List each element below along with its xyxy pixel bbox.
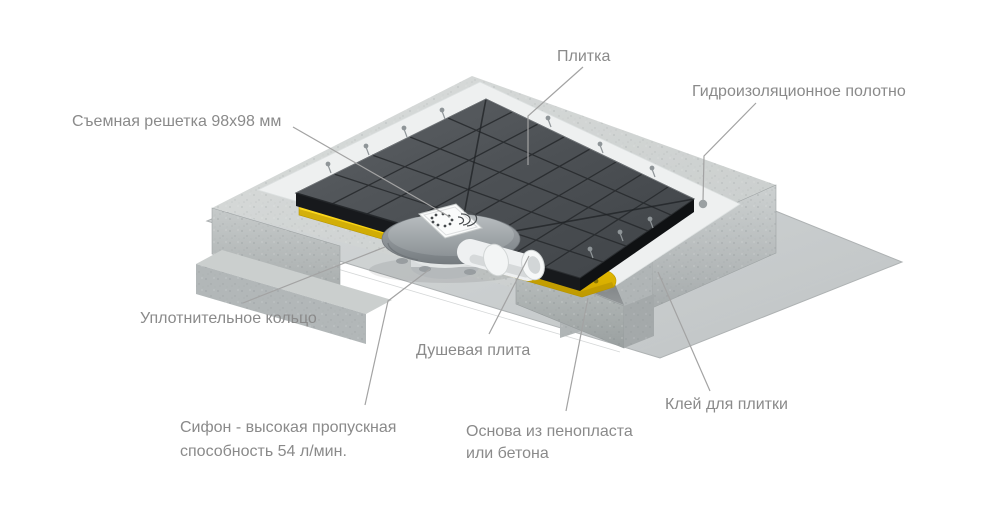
membrane-leader-dot	[699, 200, 707, 208]
label-siphon-line2: способность 54 л/мин.	[180, 443, 347, 460]
label-shower-plate: Душевая плита	[416, 342, 530, 359]
label-base-line2: или бетона	[466, 445, 549, 462]
label-tile: Плитка	[557, 48, 610, 65]
diagram-canvas: Съемная решетка 98х98 мм Плитка Гидроизо…	[0, 0, 1000, 518]
label-membrane: Гидроизоляционное полотно	[692, 83, 906, 100]
leader-siphon	[365, 269, 430, 405]
label-sealing-ring: Уплотнительное кольцо	[140, 310, 317, 327]
label-siphon-line1: Сифон - высокая пропускная	[180, 419, 396, 436]
label-base-line1: Основа из пенопласта	[466, 423, 633, 440]
shower-plate-diagram: Съемная решетка 98х98 мм Плитка Гидроизо…	[0, 0, 1000, 518]
label-grate: Съемная решетка 98х98 мм	[72, 113, 281, 130]
label-adhesive: Клей для плитки	[665, 396, 788, 413]
